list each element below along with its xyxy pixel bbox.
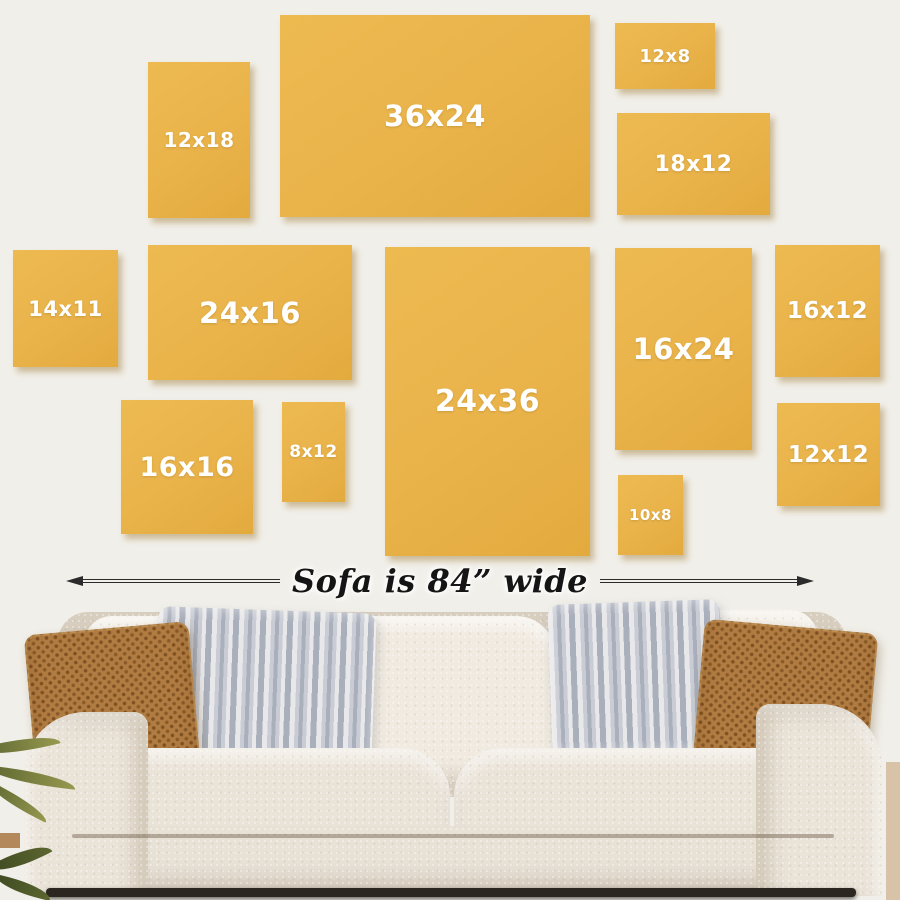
frame-24x16: 24x16 <box>148 245 352 380</box>
frame-label: 8x12 <box>289 442 337 462</box>
frame-8x12: 8x12 <box>282 402 345 502</box>
frame-16x24: 16x24 <box>615 248 752 450</box>
frame-14x11: 14x11 <box>13 250 118 367</box>
dimension-line-right <box>600 579 797 583</box>
frames-layer: 12x1836x2412x818x1214x1124x1624x3616x241… <box>0 0 900 900</box>
frame-10x8: 10x8 <box>618 475 683 555</box>
dimension-line-left <box>83 579 280 583</box>
frame-label: 24x36 <box>435 384 540 419</box>
frame-label: 12x8 <box>639 46 690 67</box>
canvas-size-guide: 12x1836x2412x818x1214x1124x1624x3616x241… <box>0 0 900 900</box>
frame-18x12: 18x12 <box>617 113 770 215</box>
sofa-width-dimension: Sofa is 84” wide <box>66 558 814 604</box>
sofa-width-label: Sofa is 84” wide <box>292 562 588 600</box>
frame-12x18: 12x18 <box>148 62 250 218</box>
frame-label: 16x24 <box>633 332 735 366</box>
frame-36x24: 36x24 <box>280 15 590 217</box>
frame-label: 16x12 <box>787 298 868 324</box>
frame-label: 14x11 <box>28 297 103 321</box>
frame-24x36: 24x36 <box>385 247 590 556</box>
frame-16x16: 16x16 <box>121 400 253 534</box>
right-arrowhead-icon <box>797 576 814 586</box>
frame-12x8: 12x8 <box>615 23 715 89</box>
frame-label: 18x12 <box>655 152 733 177</box>
frame-16x12: 16x12 <box>775 245 880 377</box>
frame-12x12: 12x12 <box>777 403 880 506</box>
frame-label: 10x8 <box>629 506 672 524</box>
frame-label: 36x24 <box>384 99 486 133</box>
frame-label: 12x12 <box>788 442 869 468</box>
left-arrowhead-icon <box>66 576 83 586</box>
frame-label: 24x16 <box>199 296 301 330</box>
frame-label: 12x18 <box>163 128 234 152</box>
frame-label: 16x16 <box>139 452 234 483</box>
